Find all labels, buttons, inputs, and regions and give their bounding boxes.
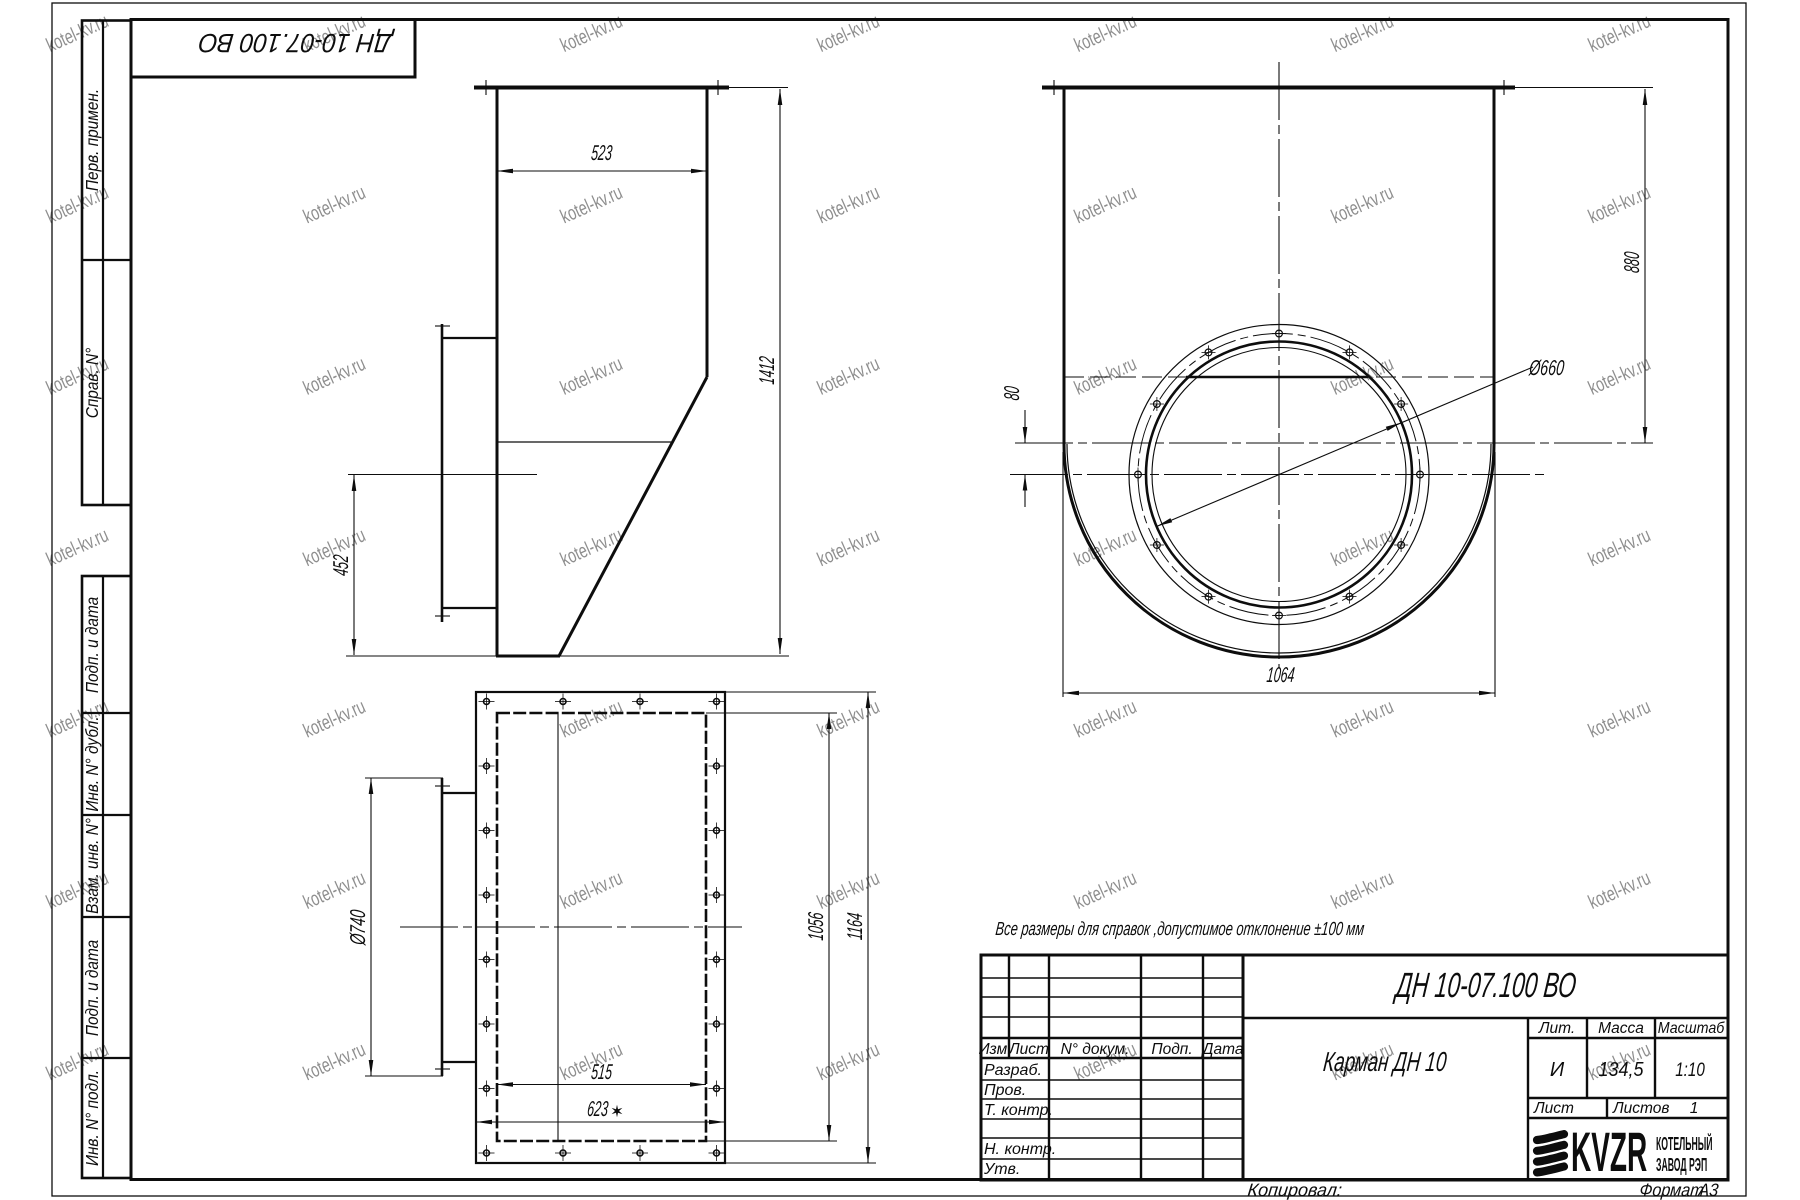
svg-text:Инв. N° подл.: Инв. N° подл. — [83, 1070, 102, 1166]
svg-text:Все размеры для справок ,допус: Все размеры для справок ,допустимое откл… — [995, 919, 1366, 940]
svg-text:Взам. инв. N°: Взам. инв. N° — [83, 818, 102, 914]
svg-text:И: И — [1550, 1059, 1565, 1081]
svg-text:Утв.: Утв. — [983, 1161, 1020, 1178]
svg-text:КОТЕЛЬНЫЙ: КОТЕЛЬНЫЙ — [1656, 1132, 1713, 1155]
svg-text:1: 1 — [1690, 1100, 1699, 1117]
svg-text:ДН 10-07.100 ВО: ДН 10-07.100 ВО — [1392, 966, 1578, 1005]
svg-text:ЗАВОД РЭП: ЗАВОД РЭП — [1656, 1156, 1707, 1176]
svg-text:Подп. и дата: Подп. и дата — [83, 940, 102, 1036]
svg-text:1:10: 1:10 — [1675, 1058, 1705, 1080]
svg-text:Масса: Масса — [1598, 1020, 1644, 1037]
svg-text:Изм.: Изм. — [978, 1041, 1011, 1058]
svg-text:Копировал:: Копировал: — [1247, 1180, 1344, 1200]
svg-text:1064: 1064 — [1266, 663, 1296, 687]
svg-text:KVZR: KVZR — [1571, 1122, 1647, 1184]
svg-text:Разраб.: Разраб. — [984, 1062, 1042, 1079]
svg-text:Дата: Дата — [1201, 1041, 1244, 1058]
svg-text:515: 515 — [590, 1060, 613, 1084]
svg-text:А3: А3 — [1697, 1179, 1720, 1200]
svg-text:N° докум.: N° докум. — [1061, 1041, 1130, 1058]
svg-text:623: 623 — [586, 1097, 609, 1121]
svg-text:Справ. N°: Справ. N° — [83, 347, 102, 418]
svg-text:Лист: Лист — [1533, 1100, 1574, 1117]
svg-text:Ø660: Ø660 — [1527, 355, 1565, 380]
svg-text:Подп.: Подп. — [1151, 1041, 1192, 1058]
svg-text:452: 452 — [329, 553, 353, 576]
svg-text:ДН 10-07.100 ВО: ДН 10-07.100 ВО — [197, 28, 396, 57]
svg-text:Формат: Формат — [1639, 1179, 1705, 1200]
svg-text:1056: 1056 — [804, 911, 828, 941]
svg-text:Листов: Листов — [1612, 1100, 1669, 1117]
svg-text:Карман ДН 10: Карман ДН 10 — [1322, 1048, 1448, 1078]
svg-text:Лит.: Лит. — [1538, 1020, 1575, 1037]
svg-text:Пров.: Пров. — [984, 1082, 1026, 1099]
svg-text:Лист: Лист — [1008, 1041, 1049, 1058]
svg-text:Масштаб: Масштаб — [1658, 1021, 1725, 1038]
svg-text:Т. контр.: Т. контр. — [984, 1102, 1053, 1119]
svg-text:134,5: 134,5 — [1598, 1059, 1643, 1081]
svg-text:Н. контр.: Н. контр. — [984, 1141, 1056, 1158]
svg-text:Инв. N° дубл.: Инв. N° дубл. — [83, 716, 102, 811]
svg-text:Перв. примен.: Перв. примен. — [83, 89, 102, 191]
svg-text:1164: 1164 — [843, 911, 867, 940]
svg-text:80: 80 — [1000, 385, 1024, 402]
svg-text:1412: 1412 — [755, 355, 779, 385]
svg-text:880: 880 — [1620, 250, 1644, 273]
svg-text:Ø740: Ø740 — [345, 909, 370, 947]
svg-text:Подп. и дата: Подп. и дата — [83, 597, 102, 693]
svg-text:523: 523 — [590, 141, 613, 165]
